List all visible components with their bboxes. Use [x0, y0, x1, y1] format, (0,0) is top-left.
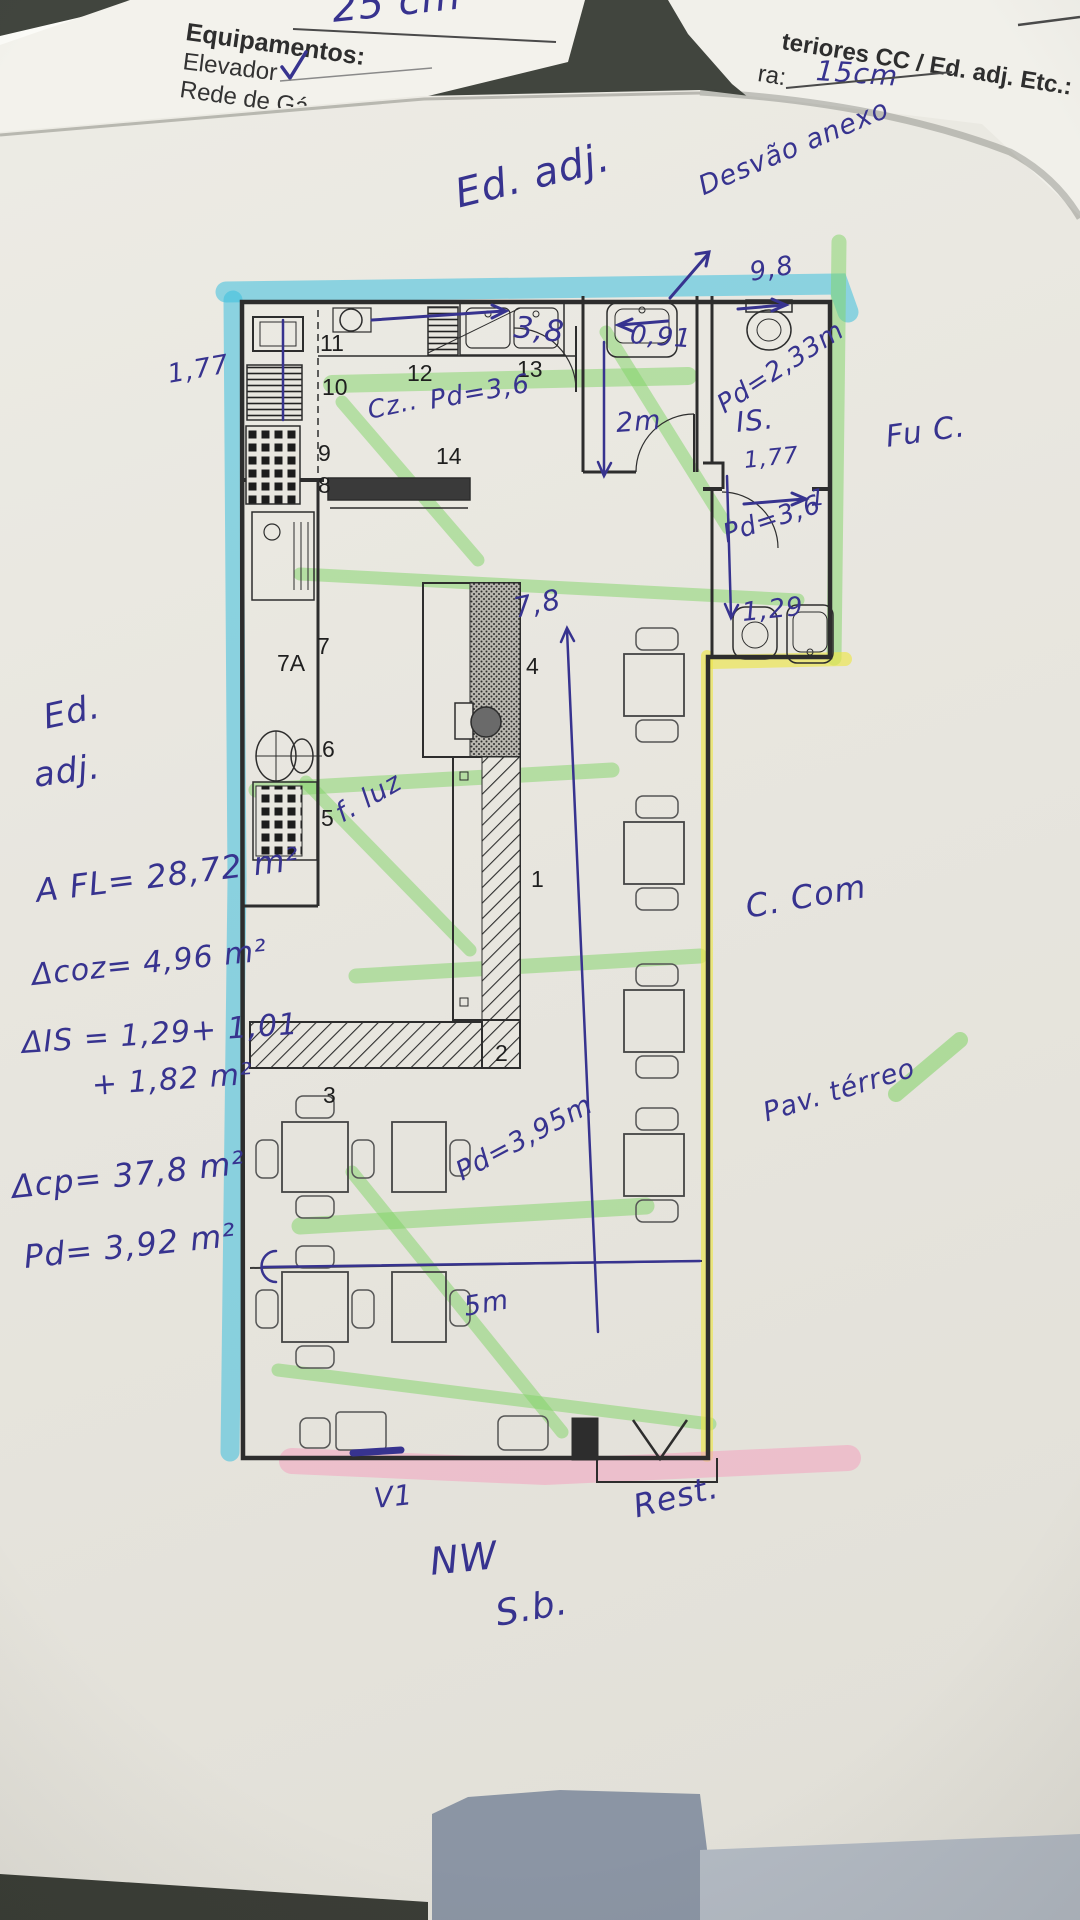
annotation-pd-2-33: Pd=2,33m [712, 315, 850, 419]
room-number-1: 1 [531, 866, 544, 893]
room-number-4: 4 [526, 653, 539, 680]
annotation-rest: Rest. [629, 1468, 722, 1526]
annotation-f-luz: f. luz [330, 767, 407, 829]
annotation-pav-terreo: Pav. térreo [759, 1053, 919, 1129]
room-number-11: 11 [320, 330, 344, 357]
annotation-7-8: 7,8 [511, 582, 564, 624]
annotation-area-is-2: + 1,82 m² [91, 1057, 254, 1103]
annotation-pd-3-95: Pd=3,95m [451, 1089, 598, 1187]
room-number-8: 8 [318, 472, 331, 499]
photo-of-annotated-floor-plan: { "form": { "note_25cm": "25 cm", "headi… [0, 0, 1080, 1920]
annotation-layer: 11 12 13 10 9 8 14 7A 7 6 5 4 1 2 3 Ed. … [0, 0, 1080, 1920]
annotation-nw: NW [428, 1533, 500, 1584]
annotation-2m: 2m [615, 405, 663, 439]
annotation-ed-left-1: Ed. [40, 687, 104, 738]
annotation-pd-3-92: Pd= 3,92 m² [22, 1216, 238, 1276]
room-number-2: 2 [495, 1040, 508, 1067]
annotation-9-8: 9,8 [747, 251, 796, 288]
annotation-c-com: C. Com [743, 867, 870, 926]
annotation-is: IS. [734, 402, 775, 439]
room-number-7: 7 [317, 633, 330, 660]
annotation-v1: V1 [372, 1478, 414, 1515]
annotation-area-coz: Δcoz= 4,96 m² [30, 933, 269, 993]
annotation-1-77-left: 1,77 [165, 349, 231, 389]
annotation-ed-adj-top: Ed. adj. [450, 135, 614, 218]
room-number-9: 9 [318, 440, 331, 467]
annotation-5m: 5m [461, 1284, 511, 1322]
room-number-14: 14 [436, 443, 462, 470]
annotation-0-91: 0,91 [629, 320, 693, 354]
room-number-5: 5 [321, 805, 334, 832]
annotation-1-29: 1,29 [740, 592, 805, 628]
annotation-1-77-right: 1,77 [743, 442, 801, 474]
annotation-area-is-1: ΔIS = 1,29+ 1,01 [21, 1007, 300, 1061]
annotation-3-8: 3,8 [512, 310, 566, 350]
room-number-6: 6 [322, 736, 335, 763]
annotation-area-cp: Δcp= 37,8 m² [10, 1144, 247, 1206]
annotation-pd-3-6-top: Pd=3,6 [427, 369, 532, 416]
room-number-10: 10 [322, 374, 348, 401]
room-number-3: 3 [323, 1082, 336, 1109]
annotation-cz: Cz.. [365, 386, 420, 425]
annotation-sb: S.b. [492, 1582, 571, 1635]
annotation-area-fl: A FL= 28,72 m² [34, 840, 302, 910]
annotation-fu-c: Fu C. [884, 409, 968, 455]
annotation-pd-3-6-right: Pd=3,6 [719, 489, 825, 549]
room-number-7a: 7A [277, 650, 305, 677]
annotation-desvao-anexo: Desvão anexo [694, 94, 894, 202]
annotation-ed-left-2: adj. [31, 747, 103, 796]
room-number-12: 12 [407, 360, 433, 387]
